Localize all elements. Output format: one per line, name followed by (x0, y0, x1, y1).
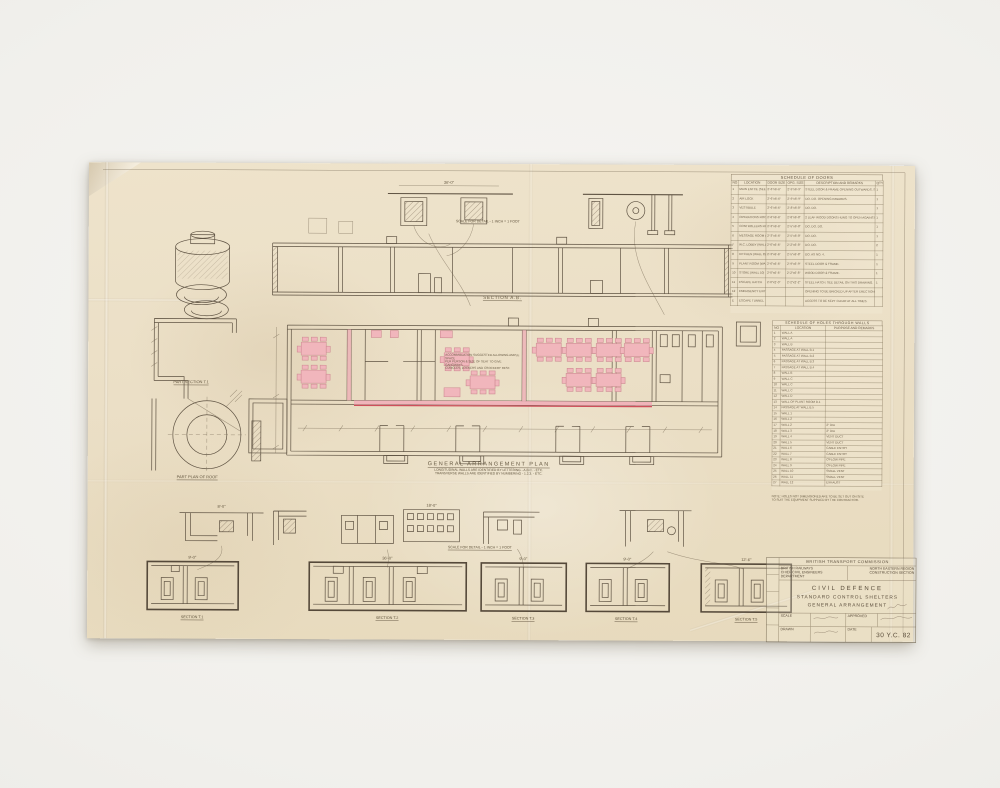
section-t5-label: SECTION T.5 (735, 617, 758, 623)
drawn-label: DRAWN (779, 627, 811, 642)
doors-schedule-body: 1 MAIN ENTCE (SEE DETAIL) 2'-6"x6'-6" 2'… (731, 185, 884, 306)
section-ab-drawing (272, 218, 732, 297)
handwritten-note (886, 601, 909, 612)
drawn-signature (810, 627, 846, 642)
section-ab-label: SECTION A.B. (483, 295, 522, 301)
svg-text:9'-0": 9'-0" (623, 557, 632, 562)
svg-text:12'-6": 12'-6" (741, 557, 752, 562)
plan-annotation-wrap: ACCOMMODATION SUGGESTED ALLOWING AMPLE S… (445, 354, 520, 371)
org-right: NORTH EASTERN REGION CONSTRUCTION SECTIO… (847, 566, 916, 580)
approved-signature (878, 614, 916, 627)
holes-schedule-note-wrap: NOTE: HOLES NOT DIMENSIONED ARE TO BE SE… (772, 495, 887, 502)
section-t1-drawing (147, 561, 238, 609)
part-plan-roof-label-wrap: PART PLAN OF ROOF (160, 475, 235, 480)
approved-label: APPROVED (846, 614, 878, 627)
section-t4-label-wrap: SECTION T.4 (596, 616, 656, 621)
svg-text:18'-0": 18'-0" (426, 503, 437, 508)
holes-note-2: TO SUIT THE EQUIPMENT SUPPLIED BY THE CO… (772, 498, 887, 502)
svg-text:36'-0": 36'-0" (382, 555, 393, 560)
section-t3-drawing (481, 563, 566, 611)
part-section-t1-drawing (151, 318, 240, 430)
section-ab-label-wrap: SECTION A.B. (467, 295, 537, 300)
svg-text:8'-0": 8'-0" (218, 504, 227, 509)
svg-text:9'-0": 9'-0" (519, 556, 528, 561)
entrance-detail-top (387, 186, 513, 307)
drawing-sheet: 36'-0" 8'-0" 18'-0" 9'-0" 36'-0" 9'-0" 9… (87, 162, 915, 642)
ga-note-2: TRANSVERSE WALLS ARE IDENTIFIED BY NUMBE… (424, 472, 554, 476)
title-block: BRITISH TRANSPORT COMMISSION BRITISH RAI… (766, 557, 916, 643)
drawing-titles: CIVIL DEFENCE STANDARD CONTROL SHELTERS … (779, 580, 916, 613)
plan-annotation-line3: CUBICLES, LOCKERS AND CROCKERY REST. (445, 367, 520, 371)
date-label: DATE (846, 627, 872, 642)
holes-schedule-row: 27 WALL 12 EXHAUST (772, 480, 882, 486)
drawing-number: 30 Y.C. 82 (871, 630, 915, 640)
scale-detail-bottom-label: SCALE FOR DETAIL - 1 INCH = 1 FOOT (448, 546, 512, 551)
section-t4-label: SECTION T.4 (615, 616, 638, 622)
holes-schedule-body: 1 WALL A 2 WALL A 3 WALL B (772, 330, 883, 486)
part-plan-of-roof-drawing (152, 389, 261, 472)
svg-text:9'-0": 9'-0" (188, 555, 197, 560)
section-t2-label-wrap: SECTION T.2 (357, 615, 417, 620)
drawing-title-1: CIVIL DEFENCE (779, 584, 916, 592)
vent-cowl-detail (175, 231, 229, 319)
section-t3-label-wrap: SECTION T.3 (493, 616, 553, 621)
section-t4-drawing (586, 563, 669, 611)
scale-label: SCALE (779, 613, 811, 626)
section-t2-label: SECTION T.2 (376, 615, 399, 621)
part-section-label: PART SECTION T.1 (173, 380, 209, 386)
section-t1-label: SECTION T.1 (181, 615, 204, 621)
bottom-sections-row (147, 561, 791, 612)
doors-schedule-row: E ESCAPE TUNNEL ACCESS TO BE KEPT CLEAR … (731, 296, 883, 306)
section-t2-drawing (309, 562, 466, 611)
ga-title-wrap: GENERAL ARRANGEMENT PLAN LONGITUDINAL WA… (424, 461, 554, 476)
ga-title: GENERAL ARRANGEMENT PLAN (428, 461, 550, 469)
drawing-title-2: STANDARD CONTROL SHELTERS (779, 594, 916, 600)
holes-schedule: SCHEDULE OF HOLES THROUGH WALLS NOLOCATI… (772, 320, 883, 490)
scale-detail-top-wrap: SCALE FOR DETAIL - 1 INCH = 1 FOOT (435, 220, 520, 224)
dimension-labels: 36'-0" 8'-0" 18'-0" 9'-0" 36'-0" 9'-0" 9… (188, 179, 753, 562)
section-t3-label: SECTION T.3 (512, 616, 535, 622)
doors-schedule: SCHEDULE OF DOORS NOLOCATIONDOOR SIZEOPG… (730, 174, 883, 314)
section-t1-label-wrap: SECTION T.1 (162, 615, 222, 620)
title-block-revision-column (766, 558, 779, 642)
part-plan-roof-label: PART PLAN OF ROOF (177, 475, 218, 481)
scale-detail-top-label: SCALE FOR DETAIL - 1 INCH = 1 FOOT (435, 220, 520, 224)
photo-background: 36'-0" 8'-0" 18'-0" 9'-0" 36'-0" 9'-0" 9… (0, 0, 1000, 788)
svg-text:36'-0": 36'-0" (444, 180, 455, 185)
scale-detail-bottom-wrap: SCALE FOR DETAIL - 1 INCH = 1 FOOT (437, 546, 522, 550)
part-section-label-wrap: PART SECTION T.1 (156, 379, 226, 384)
org-left: BRITISH RAILWAYS CHIEF CIVIL ENGINEERS D… (779, 566, 847, 580)
scale-value (811, 613, 847, 626)
